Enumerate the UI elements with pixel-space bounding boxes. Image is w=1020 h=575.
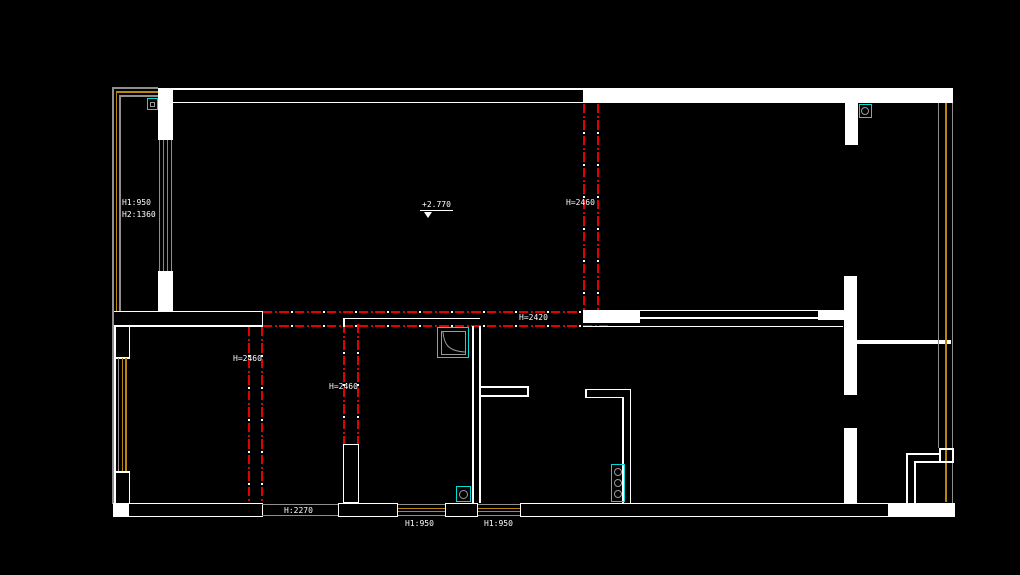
door-height-label: H:2270 xyxy=(284,506,313,515)
duct-outer-v xyxy=(906,453,908,503)
door-opening-sill-bottom xyxy=(262,515,338,516)
wall-lowerleft-outer-v xyxy=(114,325,116,504)
wall-pier-right-lower xyxy=(844,428,857,503)
balcony-frame-top-yellow xyxy=(116,91,159,93)
wall-kitchen-stub-top xyxy=(585,389,631,391)
window-left-glass-line-2 xyxy=(171,140,173,271)
window-lowerleft-glass-line xyxy=(118,358,120,472)
wall-bath-v1 xyxy=(472,326,474,503)
wall-lowerleft-inner-v-bottom xyxy=(129,471,131,504)
stove-burner-1 xyxy=(614,468,622,476)
wall-top-fill-right xyxy=(583,89,953,103)
wall-interior-left-top-line xyxy=(114,311,263,313)
elevation-underline xyxy=(420,210,453,211)
wall-mid-top-line xyxy=(583,310,844,312)
window-bottom-1-frame-2 xyxy=(398,511,445,513)
wall-mid-mid-line xyxy=(640,317,843,319)
wall-bottom-seg3 xyxy=(445,503,478,517)
duct-outer-h xyxy=(906,453,939,455)
window-bottom-2-glass-bottom xyxy=(478,515,520,516)
wall-bath-stub-cap xyxy=(527,386,529,397)
door-opening-sill-top xyxy=(262,504,338,505)
ceiling-height-room-left-label: H=2460 xyxy=(233,354,262,363)
washbasin-curve xyxy=(441,331,466,355)
window-lowerleft-frame-line-1 xyxy=(122,358,124,472)
meter-bottom-inner xyxy=(459,490,468,499)
window-bottom-2-frame-2 xyxy=(478,511,520,513)
wall-top-inner-line xyxy=(172,102,583,104)
window-bottom-2-frame-1 xyxy=(478,508,520,510)
wall-lowerleft-inner-v-top xyxy=(129,325,131,358)
duct-inner-v xyxy=(914,461,916,503)
window-left-frame-line-1 xyxy=(163,140,165,271)
window-bottom-1-glass-top xyxy=(398,504,445,505)
wall-kitchen-v2 xyxy=(630,389,632,503)
window-left-frame-line-2 xyxy=(167,140,169,271)
wall-mid-fill xyxy=(583,311,640,323)
window-bottom-1-frame-1 xyxy=(398,508,445,510)
meter-top-right-inner xyxy=(861,107,869,115)
wall-bath-v2 xyxy=(479,326,481,503)
wall-bath-stub-bottom xyxy=(480,395,528,397)
ceiling-line-horizontal-2 xyxy=(263,325,608,327)
wall-pier-top-left xyxy=(158,88,173,140)
wall-bottom-right-fill xyxy=(888,503,955,517)
wall-bottom-seg1 xyxy=(113,503,263,517)
wall-mid-bottom-line xyxy=(583,326,843,328)
wall-kitchen-stub-bottom xyxy=(585,397,624,399)
ceiling-line-top-2 xyxy=(597,104,599,312)
ceiling-height-room-mid-label: H=2460 xyxy=(329,382,358,391)
left-window-h2-label: H2:1360 xyxy=(122,210,156,219)
left-window-h1-label: H1:950 xyxy=(122,198,151,207)
ceiling-height-top-label: H=2460 xyxy=(566,198,595,207)
wall-kitchen-stub-capL xyxy=(585,389,587,399)
wall-pier-top-right xyxy=(845,103,858,145)
bottom-window-1-label: H1:950 xyxy=(405,519,434,528)
duct-inner-h xyxy=(914,461,948,463)
window-right-frame-line xyxy=(945,103,947,502)
wall-bath-stub-top xyxy=(480,386,528,388)
wall-bath-top-line xyxy=(343,318,480,320)
balcony-frame-top-gray-1 xyxy=(112,87,158,89)
cad-canvas[interactable]: +2.770 H1:950 H2:1360 H=2460 H=2420 H=24… xyxy=(0,0,1020,575)
wall-pier-mid-bottom xyxy=(343,444,359,503)
elevation-label: +2.770 xyxy=(422,200,451,209)
balcony-frame-left-yellow xyxy=(116,91,118,312)
window-right-glass-line-2 xyxy=(952,103,954,503)
window-right-glass-line-1 xyxy=(938,103,940,448)
bottom-window-2-label: H1:950 xyxy=(484,519,513,528)
wall-pier-right-upper xyxy=(844,276,857,395)
meter-top-left-inner xyxy=(150,102,155,107)
window-bottom-1-glass-bottom xyxy=(398,515,445,516)
balcony-frame-top-gray-2 xyxy=(119,95,158,97)
wall-bottom-corner-fill xyxy=(113,503,129,517)
window-bottom-2-glass-top xyxy=(478,504,520,505)
wall-bath-top-capL xyxy=(343,318,345,328)
wall-interior-left-bottom-line xyxy=(114,325,263,327)
wall-mid-fill-right xyxy=(818,311,844,320)
ceiling-line-top-1 xyxy=(583,104,585,312)
window-lowerleft-frame-line-2 xyxy=(125,358,127,472)
elevation-datum-icon xyxy=(424,212,432,218)
stove-burner-3 xyxy=(614,490,622,498)
ceiling-height-mid-label: H=2420 xyxy=(519,313,548,322)
wall-pier-left-mid xyxy=(158,271,173,312)
stove-burner-2 xyxy=(614,479,622,487)
wall-right-room-top xyxy=(844,340,951,344)
window-left-glass-line-1 xyxy=(159,140,161,271)
wall-bottom-seg2 xyxy=(338,503,398,517)
balcony-frame-left-gray-2 xyxy=(119,95,121,312)
